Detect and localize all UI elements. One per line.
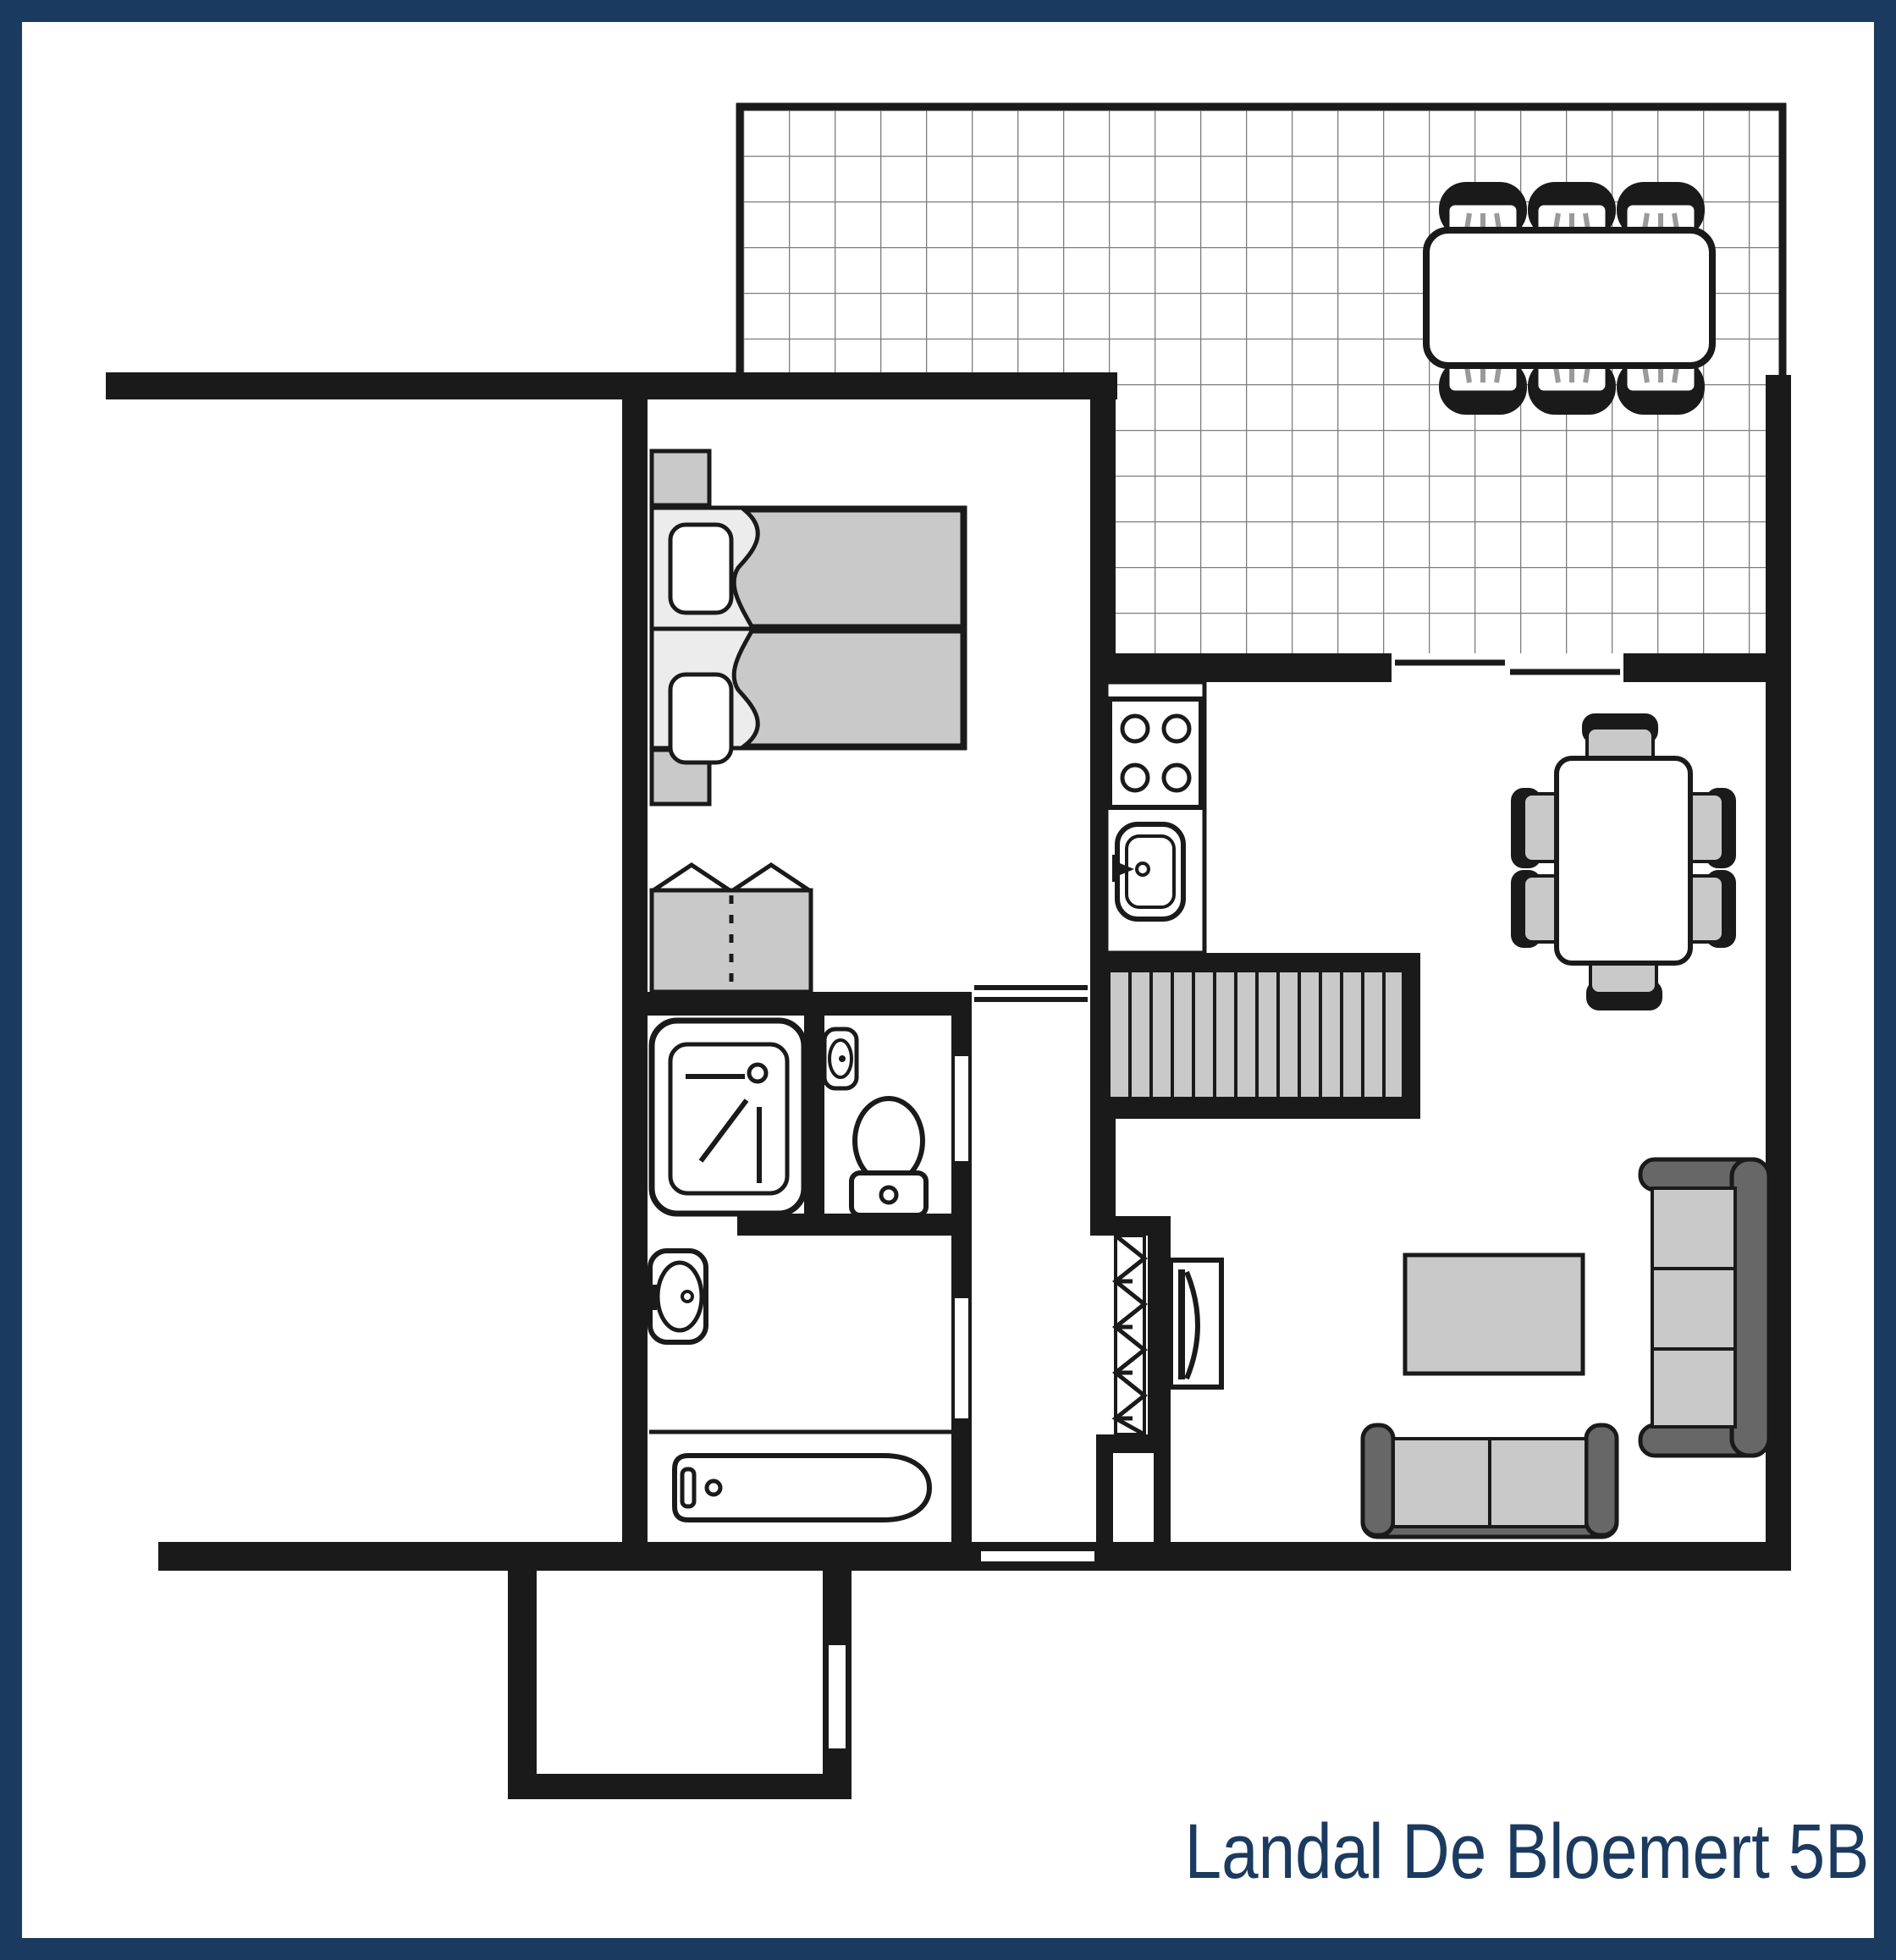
bathtub-tap — [682, 1469, 694, 1506]
corner-basin-drain — [839, 1055, 846, 1062]
sofa-armrest — [1586, 1425, 1617, 1535]
wc-fixtures — [824, 1029, 926, 1215]
wall-bottom-party — [158, 1542, 1791, 1571]
duvet — [734, 510, 962, 626]
stairs-top-stringer — [1109, 953, 1420, 971]
wall-wc-left — [804, 1012, 824, 1232]
sofa-cushion — [1652, 1269, 1735, 1349]
bathtub-drain — [707, 1481, 720, 1495]
duvet — [734, 631, 962, 746]
toilet-button — [881, 1187, 896, 1203]
sliding-door-opening — [1392, 653, 1623, 682]
outdoor-dining-table — [1426, 230, 1712, 366]
terrace-tile-grid-lower — [1116, 374, 1766, 655]
sofa-two-seat — [1363, 1425, 1617, 1537]
sink-tap — [1112, 855, 1120, 882]
wall-porch-bottom — [508, 1774, 852, 1799]
doors — [829, 653, 1623, 1748]
shower — [652, 1021, 804, 1214]
living-room-furniture — [1116, 1159, 1769, 1537]
wall-niche-left — [1096, 1453, 1113, 1544]
nightstand — [652, 451, 709, 505]
kitchen — [1106, 682, 1204, 953]
kitchen-sink — [1112, 824, 1183, 919]
basin-tap — [648, 1285, 657, 1310]
porch-door-opening — [829, 1645, 846, 1748]
radiator — [1116, 1236, 1144, 1434]
wardrobe — [652, 865, 811, 992]
stairs-end-cap — [1403, 953, 1420, 1119]
floorplan-drawing — [0, 0, 1896, 1960]
wall-unit-left — [622, 372, 648, 1569]
staircase — [1109, 953, 1420, 1119]
wash-basin — [648, 1251, 706, 1342]
sofa-three-seat — [1640, 1159, 1769, 1456]
hob-four-burners — [1110, 699, 1201, 807]
pillow — [670, 674, 731, 763]
dining-set — [1511, 713, 1736, 1010]
sofa-armrest — [1363, 1425, 1393, 1535]
tv — [1171, 1260, 1221, 1387]
outdoor-dining-set — [1426, 182, 1712, 415]
stairs-bottom-stringer — [1109, 1098, 1420, 1119]
sofa-cushion — [1490, 1439, 1586, 1527]
wardrobe-door-chevron — [733, 865, 809, 890]
pillow — [670, 525, 731, 613]
sofa-cushion — [1652, 1188, 1735, 1269]
floorplan-page: Landal De Bloemert 5B — [0, 0, 1896, 1960]
sink-drain — [1137, 863, 1149, 875]
sofa-backrest — [1732, 1159, 1769, 1456]
shower-tray-inner — [670, 1044, 787, 1193]
bathtub — [675, 1456, 929, 1520]
wall-jog — [1090, 1216, 1171, 1236]
plan-title: Landal De Bloemert 5B — [1184, 1813, 1869, 1891]
toilet — [852, 1098, 926, 1215]
sofa-cushion — [1393, 1439, 1490, 1527]
wc-door-opening — [955, 1056, 968, 1161]
bathroom-fixtures — [648, 1251, 951, 1520]
wall-porch-left — [508, 1571, 537, 1799]
wall-bedroom-bottom — [637, 992, 972, 1016]
front-door-opening — [981, 1551, 1094, 1561]
wall-top-party — [106, 372, 1117, 399]
wall-living-corridor — [1148, 1236, 1171, 1436]
wall-niche-right — [1154, 1453, 1171, 1544]
coffee-table — [1405, 1255, 1583, 1374]
bedroom-furniture — [652, 451, 965, 992]
bathroom-door-opening — [955, 1298, 968, 1418]
dining-table — [1557, 758, 1690, 963]
wall-shower-wc-bottom — [737, 1214, 972, 1236]
shower-head — [749, 1065, 766, 1082]
sofa-cushion — [1652, 1349, 1735, 1427]
wardrobe-door-chevron — [653, 865, 730, 890]
wall-corridor-stub — [1096, 1434, 1171, 1453]
